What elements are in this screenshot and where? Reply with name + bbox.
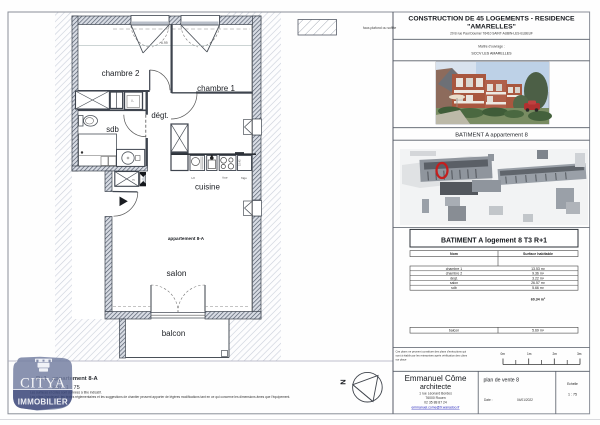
svg-text:9.36 m²: 9.36 m²	[532, 272, 545, 276]
svg-text:2m: 2m	[553, 352, 558, 356]
svg-text:Ces plans ne peuvent constitue: Ces plans ne peuvent constituer des plan…	[396, 350, 467, 354]
svg-text:Surface habitable: Surface habitable	[523, 252, 553, 256]
svg-text:5.69 m²: 5.69 m²	[532, 329, 545, 333]
svg-text:76000 Rouen: 76000 Rouen	[425, 396, 445, 400]
svg-text:15.43: 15.43	[238, 159, 242, 166]
svg-text:sont à établir par les entrepr: sont à établir par les entreprises après…	[396, 354, 468, 358]
svg-text:chambre 1: chambre 1	[197, 84, 235, 93]
svg-text:1 rue Léonard Bordes: 1 rue Léonard Bordes	[419, 392, 452, 396]
svg-text:CITYA: CITYA	[20, 376, 66, 392]
svg-text:sdb: sdb	[451, 286, 457, 290]
svg-text:balcon: balcon	[449, 329, 459, 333]
svg-text:N: N	[339, 379, 348, 384]
svg-text:5.66 m²: 5.66 m²	[532, 286, 545, 290]
svg-text:frigo: frigo	[241, 176, 247, 180]
svg-text:1 : 75: 1 : 75	[568, 393, 577, 397]
svg-text:dégt.: dégt.	[151, 111, 168, 120]
svg-text:60.34 m²: 60.34 m²	[531, 298, 546, 302]
svg-text:chambre 2: chambre 2	[102, 69, 140, 78]
svg-text:0m: 0m	[501, 352, 506, 356]
svg-text:20 B rue Paul Doumer 76410 SA: 20 B rue Paul Doumer 76410 SAINT-AUBIN-L…	[450, 32, 533, 36]
svg-text:salon: salon	[166, 268, 186, 278]
svg-text:cuisine: cuisine	[195, 183, 220, 192]
svg-text:chambre 2: chambre 2	[446, 272, 463, 276]
svg-text:emmanuel.come@9.wanadoo.fr: emmanuel.come@9.wanadoo.fr	[411, 405, 460, 409]
svg-text:3m: 3m	[577, 352, 582, 356]
svg-text:dégt.: dégt.	[450, 276, 458, 280]
svg-text:sur place: sur place	[396, 358, 407, 362]
svg-text:3.22 m²: 3.22 m²	[532, 276, 545, 280]
svg-text:BATIMENT A appartement 8: BATIMENT A appartement 8	[455, 132, 528, 138]
svg-text:"AMARELLES": "AMARELLES"	[467, 23, 516, 30]
svg-text:13.53 m²: 13.53 m²	[531, 267, 546, 271]
svg-text:LV: LV	[192, 176, 195, 180]
svg-text:1m: 1m	[527, 352, 532, 356]
svg-text:Nom: Nom	[450, 252, 458, 256]
svg-text:appartement 8-A: appartement 8-A	[168, 236, 205, 241]
svg-text:Date :: Date :	[484, 398, 493, 402]
svg-text:sdb: sdb	[106, 125, 119, 134]
svg-text:02 35 88 87 24: 02 35 88 87 24	[424, 401, 447, 405]
svg-text:faux-plafond ou soffite: faux-plafond ou soffite	[363, 26, 396, 30]
svg-text:architecte: architecte	[420, 382, 451, 391]
svg-text:Echelle: Echelle	[567, 382, 578, 386]
svg-text:BATIMENT A logement 8 T3 R+1: BATIMENT A logement 8 T3 R+1	[441, 238, 547, 245]
svg-text:04/01/2022: 04/01/2022	[517, 398, 533, 402]
svg-text:Maître d'ouvrage :: Maître d'ouvrage :	[478, 45, 505, 49]
svg-text:chambre 1: chambre 1	[446, 267, 463, 271]
svg-text:CONSTRUCTION DE 45 LOGEMENTS -: CONSTRUCTION DE 45 LOGEMENTS - RESIDENCE	[408, 16, 575, 23]
svg-text:four: four	[223, 176, 228, 180]
svg-text:salon: salon	[450, 281, 458, 285]
svg-text:IMMOBILIER: IMMOBILIER	[18, 397, 68, 406]
svg-text:plan de vente 8: plan de vente 8	[484, 378, 520, 384]
svg-text:balcon: balcon	[162, 329, 186, 338]
svg-text:26.57 m²: 26.57 m²	[531, 281, 546, 285]
svg-text:SCCV LES AMARELLES: SCCV LES AMARELLES	[471, 52, 512, 56]
svg-text:6.99: 6.99	[161, 41, 168, 45]
